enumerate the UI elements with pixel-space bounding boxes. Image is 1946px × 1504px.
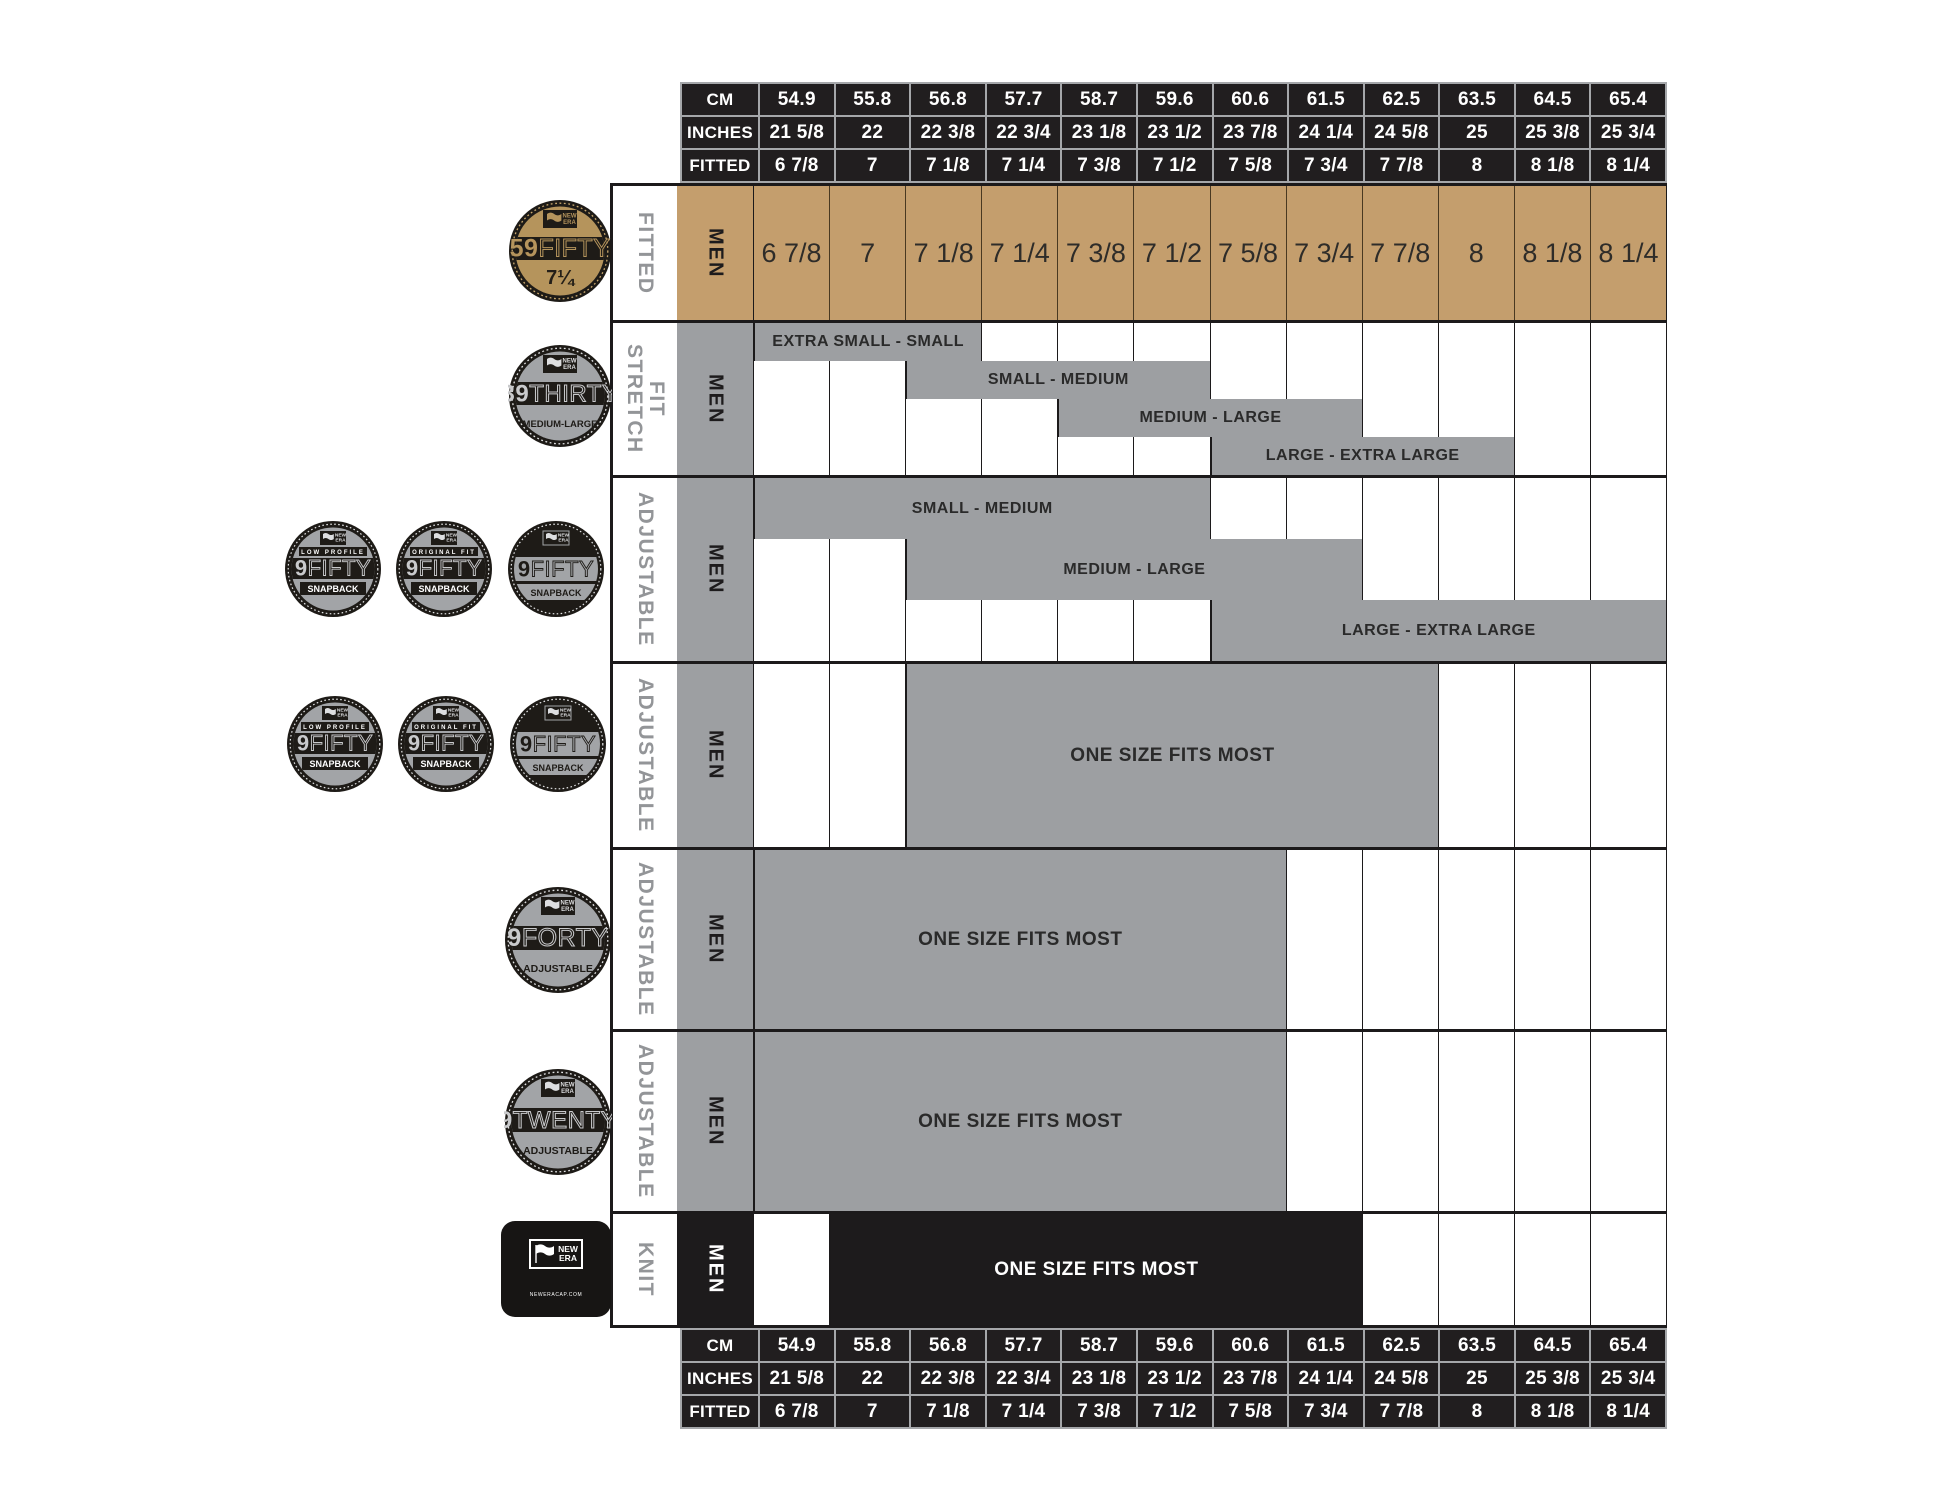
fit-label: STRETCH FIT (610, 323, 677, 475)
inches-value: 25 3/4 (1591, 117, 1665, 148)
badge-9fifty-low-profile: NEW ERA LOW PROFILE 9FIFTY SNAPBACK (284, 520, 382, 618)
svg-text:SNAPBACK: SNAPBACK (420, 759, 472, 769)
badge-9fifty-snapback: NEW ERA 9FIFTY SNAPBACK (507, 520, 605, 618)
gender-label: MEN (677, 186, 754, 320)
svg-text:9TWENTY: 9TWENTY (504, 1107, 612, 1134)
svg-text:NEW: NEW (561, 901, 575, 907)
fitted-value: 7 1/2 (1138, 150, 1212, 181)
fitted-value: 7 (836, 150, 910, 181)
svg-text:ADJUSTABLE: ADJUSTABLE (523, 963, 593, 975)
svg-text:ERA: ERA (561, 907, 574, 913)
fitted-value: 7 7/8 (1365, 150, 1439, 181)
inches-value: 25 (1440, 1363, 1514, 1394)
cm-value: 61.5 (1289, 84, 1363, 115)
gender-label: MEN (677, 664, 754, 847)
size-band: ONE SIZE FITS MOST (754, 1032, 1287, 1211)
fitted-value: 6 7/8 (760, 150, 834, 181)
fit-label: ADJUSTABLE (610, 850, 677, 1029)
bottom-header: CM 54.9 55.8 56.8 57.7 58.7 59.6 60.6 61… (680, 1328, 1667, 1429)
gender-label: MEN (677, 1214, 754, 1325)
row-adjustable-9twenty: ADJUSTABLE MEN ONE SIZE FITS MOST (610, 1029, 1667, 1211)
badge-9twenty: NEW ERA 9TWENTY ADJUSTABLE (504, 1068, 612, 1176)
fitted-value: 7 3/4 (1289, 150, 1363, 181)
cm-value: 59.6 (1138, 84, 1212, 115)
header-label-cm: CM (682, 84, 758, 115)
inches-value: 25 3/8 (1516, 117, 1590, 148)
badge-9fifty-low-profile: NEW ERA LOW PROFILE 9FIFTY SNAPBACK (286, 695, 384, 793)
svg-text:9FIFTY: 9FIFTY (297, 731, 373, 756)
badge-9fifty-original-fit: NEW ERA ORIGINAL FIT 9FIFTY SNAPBACK (395, 520, 493, 618)
new-era-logo: NEW ERA (433, 706, 460, 720)
svg-text:MEDIUM-LARGE: MEDIUM-LARGE (523, 419, 598, 430)
size-band: SMALL - MEDIUM (754, 478, 1211, 539)
size-band: SMALL - MEDIUM (906, 361, 1210, 399)
size-band: MEDIUM - LARGE (1058, 399, 1362, 437)
fitted-size-cell: 8 (1439, 186, 1515, 320)
cm-value: 56.8 (911, 84, 985, 115)
fitted-size-cell: 7 1/8 (906, 186, 982, 320)
chart-body: FITTED MEN 6 7/8 7 7 1/8 7 1/4 7 3/8 7 1… (610, 183, 1667, 1328)
new-era-logo: NEW ERA (431, 531, 458, 545)
new-era-logo: NEW ERA (545, 706, 572, 720)
svg-text:SNAPBACK: SNAPBACK (530, 588, 582, 598)
fitted-value: 7 3/8 (1062, 150, 1136, 181)
fitted-value: 7 3/8 (1062, 1396, 1136, 1427)
inches-value: 23 1/8 (1062, 1363, 1136, 1394)
gender-label: MEN (677, 478, 754, 661)
row-stretch-fit-39thirty: STRETCH FIT MEN EXTRA SMALL - SMALL SMAL… (610, 320, 1667, 475)
svg-text:ERA: ERA (558, 538, 569, 544)
svg-text:SNAPBACK: SNAPBACK (309, 759, 361, 769)
gender-label: MEN (677, 1032, 754, 1211)
top-header: CM 54.9 55.8 56.8 57.7 58.7 59.6 60.6 61… (680, 82, 1667, 183)
svg-text:59FIFTY: 59FIFTY (510, 235, 611, 263)
row-adjustable-9fifty-stepped: ADJUSTABLE MEN SMALL - MEDIUM MEDIUM - L… (610, 475, 1667, 661)
cm-value: 56.8 (911, 1330, 985, 1361)
svg-text:7¼: 7¼ (546, 267, 576, 289)
inches-value: 24 5/8 (1365, 117, 1439, 148)
fitted-size-cells: 6 7/8 7 7 1/8 7 1/4 7 3/8 7 1/2 7 5/8 7 … (754, 186, 1667, 320)
svg-text:9FIFTY: 9FIFTY (408, 731, 484, 756)
fitted-size-cell: 7 7/8 (1363, 186, 1439, 320)
inches-value: 24 1/4 (1289, 117, 1363, 148)
header-label-cm: CM (682, 1330, 758, 1361)
fitted-size-cell: 8 1/4 (1591, 186, 1667, 320)
svg-text:9FORTY: 9FORTY (507, 924, 608, 952)
inches-value: 23 7/8 (1214, 1363, 1288, 1394)
size-band: ONE SIZE FITS MOST (754, 850, 1287, 1029)
new-era-logo: NEW ERA (322, 706, 349, 720)
gender-label: MEN (677, 323, 754, 475)
inches-value: 25 3/4 (1591, 1363, 1665, 1394)
inches-value: 21 5/8 (760, 117, 834, 148)
cm-value: 57.7 (987, 1330, 1061, 1361)
fit-label: FITTED (610, 186, 677, 320)
size-band: ONE SIZE FITS MOST (830, 1214, 1363, 1325)
cm-value: 64.5 (1516, 84, 1590, 115)
inches-value: 23 1/2 (1138, 117, 1212, 148)
inches-value: 22 3/4 (987, 1363, 1061, 1394)
svg-text:9FIFTY: 9FIFTY (520, 732, 596, 757)
svg-text:SNAPBACK: SNAPBACK (418, 584, 470, 594)
header-label-inches: INCHES (682, 1363, 758, 1394)
inches-value: 22 3/4 (987, 117, 1061, 148)
fit-label: ADJUSTABLE (610, 478, 677, 661)
svg-text:9FIFTY: 9FIFTY (518, 557, 594, 582)
inches-value: 23 1/8 (1062, 117, 1136, 148)
svg-text:NEW: NEW (561, 1083, 575, 1089)
new-era-logo: NEW ERA (543, 531, 570, 545)
gender-label: MEN (677, 850, 754, 1029)
svg-text:NEW: NEW (563, 214, 577, 220)
inches-value: 25 (1440, 117, 1514, 148)
size-cells: EXTRA SMALL - SMALL SMALL - MEDIUM MEDIU… (754, 323, 1667, 475)
svg-text:SNAPBACK: SNAPBACK (532, 763, 584, 773)
inches-value: 22 3/8 (911, 1363, 985, 1394)
knit-new-era-logo: NEW ERA NEWERACAP.COM (500, 1220, 612, 1318)
row-knit: KNIT MEN ONE SIZE FITS MOST (610, 1211, 1667, 1325)
svg-text:ERA: ERA (559, 1253, 577, 1263)
cm-value: 65.4 (1591, 1330, 1665, 1361)
fitted-value: 7 1/8 (911, 1396, 985, 1427)
new-era-logo: NEW ERA (541, 897, 575, 915)
fitted-value: 8 (1440, 1396, 1514, 1427)
cm-value: 60.6 (1214, 1330, 1288, 1361)
fitted-size-cell: 8 1/8 (1515, 186, 1591, 320)
fit-label: KNIT (610, 1214, 677, 1325)
cm-value: 63.5 (1440, 84, 1514, 115)
fitted-value: 8 1/8 (1516, 150, 1590, 181)
cm-value: 54.9 (760, 84, 834, 115)
svg-text:ERA: ERA (448, 713, 459, 719)
header-label-inches: INCHES (682, 117, 758, 148)
cm-value: 65.4 (1591, 84, 1665, 115)
inches-value: 22 (836, 1363, 910, 1394)
cm-value: 58.7 (1062, 1330, 1136, 1361)
cm-value: 62.5 (1365, 1330, 1439, 1361)
cm-value: 58.7 (1062, 84, 1136, 115)
fitted-value: 7 1/8 (911, 150, 985, 181)
svg-text:ERA: ERA (561, 1089, 574, 1095)
fit-label: ADJUSTABLE (610, 664, 677, 847)
svg-text:ERA: ERA (563, 220, 576, 226)
svg-text:9FIFTY: 9FIFTY (406, 556, 482, 581)
fitted-size-cell: 7 (830, 186, 906, 320)
badge-59fifty: NEW ERA 59FIFTY 7¼ (508, 199, 612, 303)
inches-value: 23 1/2 (1138, 1363, 1212, 1394)
size-band: ONE SIZE FITS MOST (906, 664, 1439, 847)
size-band: EXTRA SMALL - SMALL (754, 323, 982, 361)
fitted-value: 7 1/2 (1138, 1396, 1212, 1427)
badge-9fifty-snapback: NEW ERA 9FIFTY SNAPBACK (509, 695, 607, 793)
size-cells: SMALL - MEDIUM MEDIUM - LARGE LARGE - EX… (754, 478, 1667, 661)
new-era-logo: NEW ERA (320, 531, 347, 545)
header-label-fitted: FITTED (682, 1396, 758, 1427)
inches-value: 23 7/8 (1214, 117, 1288, 148)
svg-text:ERA: ERA (446, 538, 457, 544)
inches-value: 24 1/4 (1289, 1363, 1363, 1394)
cm-value: 55.8 (836, 84, 910, 115)
inches-value: 22 3/8 (911, 117, 985, 148)
fitted-value: 8 1/4 (1591, 150, 1665, 181)
fitted-size-cell: 7 5/8 (1211, 186, 1287, 320)
fitted-size-cell: 7 1/2 (1134, 186, 1210, 320)
row-adjustable-9forty: ADJUSTABLE MEN ONE SIZE FITS MOST (610, 847, 1667, 1029)
fitted-value: 7 7/8 (1365, 1396, 1439, 1427)
svg-text:ERA: ERA (560, 713, 571, 719)
svg-text:NEWERACAP.COM: NEWERACAP.COM (530, 1292, 582, 1298)
fitted-value: 7 5/8 (1214, 150, 1288, 181)
cm-value: 62.5 (1365, 84, 1439, 115)
fitted-size-cell: 7 1/4 (982, 186, 1058, 320)
fitted-value: 7 1/4 (987, 1396, 1061, 1427)
header-label-fitted: FITTED (682, 150, 758, 181)
inches-value: 21 5/8 (760, 1363, 834, 1394)
fitted-value: 7 5/8 (1214, 1396, 1288, 1427)
svg-text:NEW: NEW (563, 359, 577, 365)
fitted-value: 6 7/8 (760, 1396, 834, 1427)
cm-value: 63.5 (1440, 1330, 1514, 1361)
cm-value: 57.7 (987, 84, 1061, 115)
fit-label: ADJUSTABLE (610, 1032, 677, 1211)
fitted-value: 7 3/4 (1289, 1396, 1363, 1427)
new-era-logo: NEW ERA (543, 210, 577, 228)
svg-text:ERA: ERA (563, 365, 576, 371)
size-chart: CM 54.9 55.8 56.8 57.7 58.7 59.6 60.6 61… (0, 0, 1946, 1504)
inches-value: 25 3/8 (1516, 1363, 1590, 1394)
new-era-logo: NEW ERA (541, 1079, 575, 1097)
cm-value: 60.6 (1214, 84, 1288, 115)
size-band: LARGE - EXTRA LARGE (1211, 600, 1668, 661)
cm-value: 59.6 (1138, 1330, 1212, 1361)
row-adjustable-9fifty-onesize: ADJUSTABLE MEN ONE SIZE FITS MOST (610, 661, 1667, 847)
size-cells: ONE SIZE FITS MOST (754, 850, 1667, 1029)
fitted-size-cell: 7 3/8 (1058, 186, 1134, 320)
size-cells: ONE SIZE FITS MOST (754, 664, 1667, 847)
new-era-logo: NEW ERA (543, 355, 577, 373)
size-cells: ONE SIZE FITS MOST (754, 1032, 1667, 1211)
size-band: MEDIUM - LARGE (906, 539, 1363, 600)
fitted-value: 8 1/8 (1516, 1396, 1590, 1427)
svg-text:39THIRTY: 39THIRTY (508, 381, 612, 408)
fitted-value: 8 1/4 (1591, 1396, 1665, 1427)
row-fitted-59fifty: FITTED MEN 6 7/8 7 7 1/8 7 1/4 7 3/8 7 1… (610, 186, 1667, 320)
cm-value: 54.9 (760, 1330, 834, 1361)
cm-value: 64.5 (1516, 1330, 1590, 1361)
cm-value: 55.8 (836, 1330, 910, 1361)
fitted-value: 7 1/4 (987, 150, 1061, 181)
fitted-size-cell: 6 7/8 (754, 186, 830, 320)
svg-text:9FIFTY: 9FIFTY (295, 556, 371, 581)
svg-text:ERA: ERA (335, 538, 346, 544)
fitted-value: 7 (836, 1396, 910, 1427)
badge-9fifty-original-fit: NEW ERA ORIGINAL FIT 9FIFTY SNAPBACK (397, 695, 495, 793)
cm-value: 61.5 (1289, 1330, 1363, 1361)
svg-text:SNAPBACK: SNAPBACK (307, 584, 359, 594)
badge-9forty: NEW ERA 9FORTY ADJUSTABLE (504, 886, 612, 994)
svg-text:ADJUSTABLE: ADJUSTABLE (523, 1145, 593, 1157)
inches-value: 22 (836, 117, 910, 148)
inches-value: 24 5/8 (1365, 1363, 1439, 1394)
size-band: LARGE - EXTRA LARGE (1211, 437, 1515, 475)
fitted-size-cell: 7 3/4 (1287, 186, 1363, 320)
svg-text:ERA: ERA (337, 713, 348, 719)
fitted-value: 8 (1440, 150, 1514, 181)
badge-39thirty: NEW ERA 39THIRTY MEDIUM-LARGE (508, 344, 612, 448)
size-cells: ONE SIZE FITS MOST (754, 1214, 1667, 1325)
